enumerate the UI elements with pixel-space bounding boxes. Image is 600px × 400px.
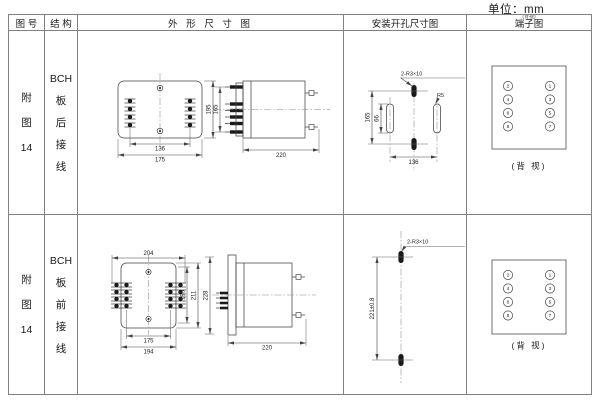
screw-terminal bbox=[175, 304, 186, 308]
terminal-pin bbox=[216, 302, 228, 305]
dim-label: 195 bbox=[207, 104, 213, 115]
screw-terminal bbox=[121, 283, 132, 287]
screw-terminal bbox=[111, 290, 122, 294]
dim-label: 175 bbox=[143, 339, 154, 345]
structure-char: 接 bbox=[56, 139, 67, 151]
terminal-number: 3 bbox=[549, 97, 552, 103]
screw-terminal bbox=[165, 304, 176, 308]
outline-diagram-row1: 195 136 175 bbox=[78, 31, 343, 214]
dim-label: 175 bbox=[155, 158, 166, 164]
screw-terminal bbox=[185, 107, 196, 111]
mounting-stud bbox=[305, 91, 318, 96]
hole-callout: 2-R3×10 bbox=[400, 72, 465, 87]
structure-char: 板 bbox=[56, 95, 67, 107]
outline-diagram-row2: 204 175 194 195 bbox=[78, 215, 343, 394]
terminal-number: 4 bbox=[507, 97, 510, 103]
structure-char: 板 bbox=[56, 277, 67, 289]
dim-height-195: 195 bbox=[178, 267, 190, 323]
terminal-number: 6 bbox=[507, 111, 510, 117]
screw-terminal bbox=[185, 115, 196, 119]
terminal-number: 1 bbox=[549, 273, 552, 279]
screw-terminal bbox=[111, 297, 122, 301]
screw-terminal bbox=[185, 99, 196, 103]
front-view: 195 136 175 bbox=[118, 73, 216, 164]
dim-label: 211 bbox=[192, 290, 198, 300]
structure-char: 线 bbox=[56, 343, 67, 355]
install-diagram-row1: 165 66 136 2-R3×10 R5 bbox=[344, 31, 466, 214]
dim-slot-66: 66 bbox=[375, 104, 389, 133]
terminal-pin bbox=[225, 102, 243, 105]
outline-cell-row2: 204 175 194 195 bbox=[78, 215, 344, 394]
screw-terminal bbox=[165, 297, 176, 301]
dim-label: 221±0.8 bbox=[370, 297, 376, 319]
terminal-number: 7 bbox=[549, 313, 552, 319]
hole-label: 2-R3×10 bbox=[401, 72, 422, 78]
dim-label: 66 bbox=[375, 115, 381, 122]
screw-terminal bbox=[165, 283, 176, 287]
screw-terminal bbox=[121, 290, 132, 294]
dim-depth-220: 220 bbox=[228, 319, 306, 352]
terminal-cell-row2: 2 4 6 8 1 3 5 7 (背 视) bbox=[467, 215, 591, 394]
figure-char: 附 bbox=[21, 92, 32, 104]
screw-terminal bbox=[121, 304, 132, 308]
terminal-number: 8 bbox=[507, 313, 510, 319]
outline-cell-row1: 195 136 175 bbox=[78, 31, 344, 215]
terminal-number: 1 bbox=[549, 84, 552, 90]
screw-terminal bbox=[111, 283, 122, 287]
dim-label: 204 bbox=[143, 251, 154, 257]
terminal-circles: 2 4 6 8 1 3 5 7 bbox=[503, 270, 554, 320]
dim-label: 136 bbox=[155, 147, 166, 153]
header-outline: 外 形 尺 寸 图 bbox=[78, 15, 344, 31]
install-diagram-row2: 221±0.8 2-R3×10 bbox=[344, 215, 466, 394]
dim-label: 165 bbox=[366, 112, 372, 123]
structure-row2: BCH 板 前 接 线 bbox=[45, 215, 78, 394]
dim-width-204: 204 bbox=[112, 251, 185, 283]
terminal-pin bbox=[225, 130, 243, 133]
dim-height-221: 221±0.8 bbox=[370, 257, 377, 360]
terminal-number: 8 bbox=[507, 124, 510, 130]
dim-label: 136 bbox=[408, 160, 419, 166]
screw-terminal bbox=[125, 107, 136, 111]
structure-char: 后 bbox=[56, 117, 67, 129]
terminal-pin bbox=[225, 115, 243, 118]
structure-char: 接 bbox=[56, 321, 67, 333]
mounting-stud bbox=[305, 125, 318, 130]
header-structure: 结 构 bbox=[45, 15, 78, 31]
terminal-circles: 2 4 6 8 1 3 5 7 bbox=[503, 81, 554, 131]
install-cell-row1: 165 66 136 2-R3×10 R5 bbox=[344, 31, 467, 215]
screw-terminal bbox=[165, 290, 176, 294]
terminal-number: 5 bbox=[549, 300, 552, 306]
structure-char: 前 bbox=[56, 299, 67, 311]
radius-label: R5 bbox=[437, 93, 444, 99]
figure-char: 14 bbox=[21, 324, 33, 336]
screw-terminal bbox=[125, 115, 136, 119]
screw-terminal bbox=[121, 297, 132, 301]
figure-char: 14 bbox=[21, 142, 33, 154]
dim-label: 220 bbox=[276, 153, 287, 159]
dim-label: 195 bbox=[181, 289, 187, 300]
terminal-diagram-row1: 2 4 6 8 1 3 5 7 (背 视) bbox=[467, 31, 591, 214]
dim-height-165: 165 bbox=[366, 91, 373, 144]
figure-char: 图 bbox=[21, 117, 32, 129]
dim-height-228: 228 bbox=[204, 257, 215, 334]
terminal-number: 6 bbox=[507, 300, 510, 306]
screw-terminal bbox=[125, 99, 136, 103]
screw-terminal bbox=[185, 123, 196, 127]
mounting-stud bbox=[292, 275, 305, 280]
figure-char: 附 bbox=[21, 274, 32, 286]
figure-char: 图 bbox=[21, 299, 32, 311]
figure-no-row1: 附 图 14 bbox=[9, 31, 45, 215]
terminal-cell-row1: 2 4 6 8 1 3 5 7 (背 视) bbox=[467, 31, 591, 215]
terminal-pin bbox=[225, 122, 243, 125]
terminal-block bbox=[492, 260, 566, 334]
front-view: 204 175 194 195 bbox=[111, 251, 214, 356]
figure-no-row2: 附 图 14 bbox=[9, 215, 45, 394]
terminal-number: 3 bbox=[549, 286, 552, 292]
spec-table: 图 号 结 构 外 形 尺 寸 图 安装开孔尺寸图 (背视) 端子图 附 图 1… bbox=[8, 14, 592, 395]
terminal-number: 2 bbox=[507, 84, 510, 90]
terminal-number: 7 bbox=[549, 124, 552, 130]
dim-label: 220 bbox=[262, 346, 273, 352]
terminal-pin bbox=[216, 297, 228, 300]
dim-label: 228 bbox=[204, 290, 210, 301]
dim-label: 165 bbox=[214, 104, 220, 115]
terminal-pin bbox=[225, 85, 243, 88]
header-terminal: (背视) 端子图 bbox=[467, 15, 591, 31]
structure-char: 线 bbox=[56, 161, 67, 173]
terminal-number: 2 bbox=[507, 273, 510, 279]
hole-callout: 2-R3×10 bbox=[402, 240, 466, 252]
terminal-diagram-row2: 2 4 6 8 1 3 5 7 (背 视) bbox=[467, 215, 591, 394]
header-figure-no: 图 号 bbox=[9, 15, 45, 31]
terminal-block bbox=[492, 66, 566, 149]
mounting-stud bbox=[292, 313, 305, 318]
structure-char: BCH bbox=[50, 255, 72, 267]
view-caption: (背 视) bbox=[511, 341, 546, 351]
terminal-number: 4 bbox=[507, 286, 510, 292]
structure-char: BCH bbox=[50, 73, 72, 85]
terminal-pin bbox=[216, 292, 228, 295]
terminal-pin bbox=[216, 307, 228, 310]
install-cell-row2: 221±0.8 2-R3×10 bbox=[344, 215, 467, 394]
dim-depth-220: 220 bbox=[243, 129, 319, 159]
view-caption: (背 视) bbox=[511, 161, 546, 171]
terminal-number: 5 bbox=[549, 111, 552, 117]
header-install: 安装开孔尺寸图 bbox=[344, 15, 467, 31]
hole-label: 2-R3×10 bbox=[407, 240, 428, 246]
dim-width-136: 136 bbox=[390, 157, 437, 166]
side-view: 220 bbox=[212, 255, 316, 352]
screw-terminal bbox=[175, 283, 186, 287]
screw-terminal bbox=[125, 123, 136, 127]
side-view: 165 220 bbox=[214, 81, 331, 159]
dim-label: 194 bbox=[143, 350, 154, 356]
structure-row1: BCH 板 后 接 线 bbox=[45, 31, 78, 215]
header-terminal-note: (背视) bbox=[467, 15, 591, 20]
screw-terminal bbox=[111, 304, 122, 308]
